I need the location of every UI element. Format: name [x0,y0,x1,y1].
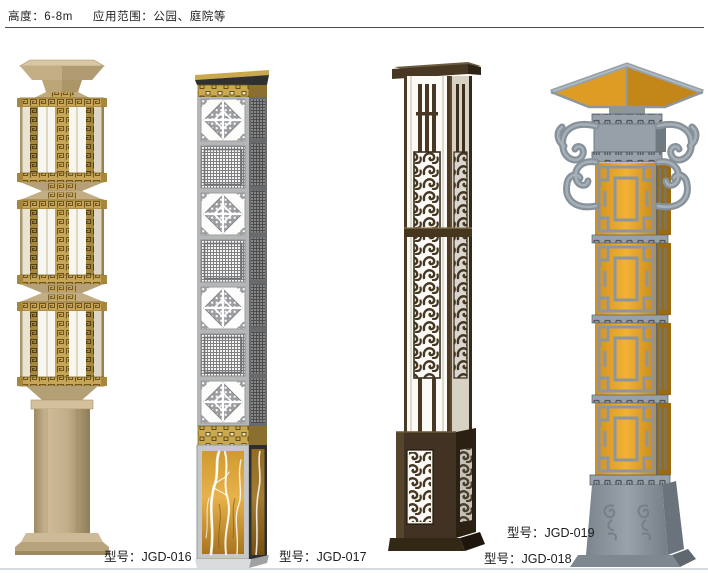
catalog-page: 高度：6-8m应用范围：公园、庭院等 [0,0,708,579]
ground-line [0,568,708,570]
spec-header: 高度：6-8m应用范围：公园、庭院等 [8,8,226,24]
model-label-jgd-017: 型号：JGD-017 [279,546,367,565]
spec-height-text: 高度：6-8m [8,11,73,23]
lamp-image-jgd-016 [6,53,118,558]
model-label-jgd-016: 型号：JGD-016 [104,546,192,565]
model-label-jgd-018: 型号：JGD-018 [484,548,572,567]
spec-scope-text: 应用范围：公园、庭院等 [93,11,226,23]
model-label-jgd-019: 型号：JGD-019 [507,522,595,541]
lamp-image-jgd-019 [548,58,706,570]
lamp-image-jgd-017 [193,68,275,570]
header-divider [5,27,704,28]
lamp-image-jgd-018 [388,60,488,565]
